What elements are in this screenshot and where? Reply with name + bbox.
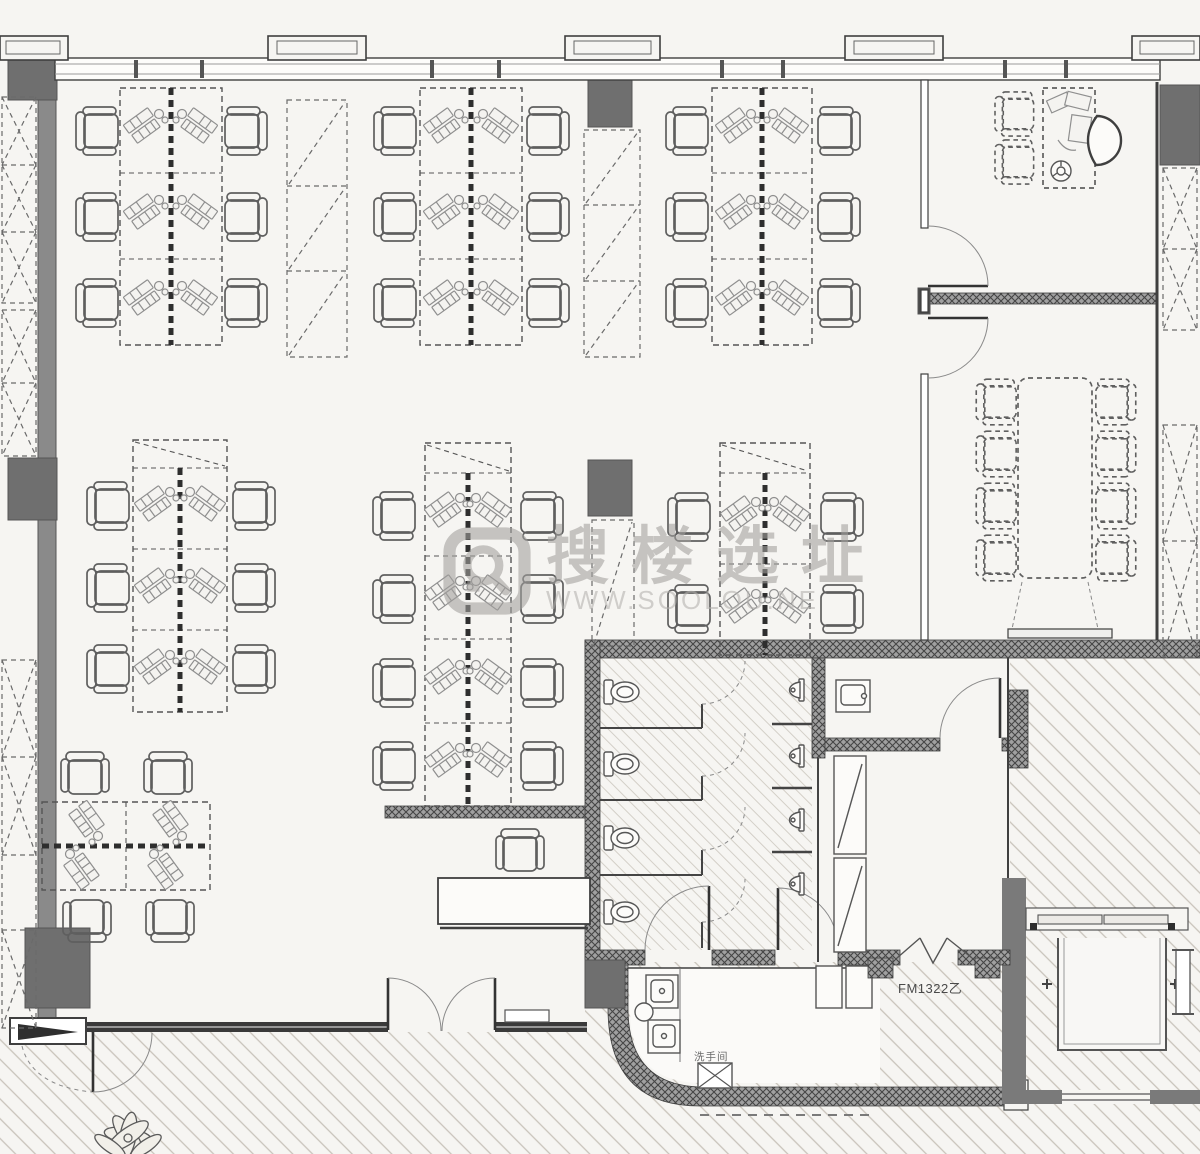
floor-plan-drawing: 洗手间 FM1322乙 — [0, 0, 1200, 1154]
vanity-counter — [834, 756, 866, 952]
column — [1160, 85, 1200, 165]
reception-desk — [438, 878, 590, 924]
washbasin — [836, 680, 870, 712]
reception-feature-wall — [385, 806, 585, 818]
column — [8, 55, 57, 100]
wall-tv — [1008, 629, 1112, 638]
fire-door-label: FM1322乙 — [898, 981, 962, 996]
elevator-car — [1058, 938, 1166, 1050]
core-wall — [1002, 878, 1026, 1094]
column — [588, 460, 632, 516]
column — [585, 960, 625, 1008]
toilet-icon — [604, 826, 639, 850]
telephone-icon — [1051, 161, 1071, 181]
column — [8, 458, 57, 520]
floor-plan-page: 洗手间 FM1322乙 搜楼选址 WWW.SOOLOU.NE — [0, 0, 1200, 1154]
column — [25, 928, 90, 1008]
counterweight — [1176, 950, 1190, 1014]
toilet-icon — [604, 900, 639, 924]
toilet-icon — [604, 752, 639, 776]
elevator-door — [1038, 915, 1102, 924]
restroom-label: 洗手间 — [694, 1050, 729, 1063]
elevator-door — [1104, 915, 1168, 924]
toilet-icon — [604, 680, 639, 704]
